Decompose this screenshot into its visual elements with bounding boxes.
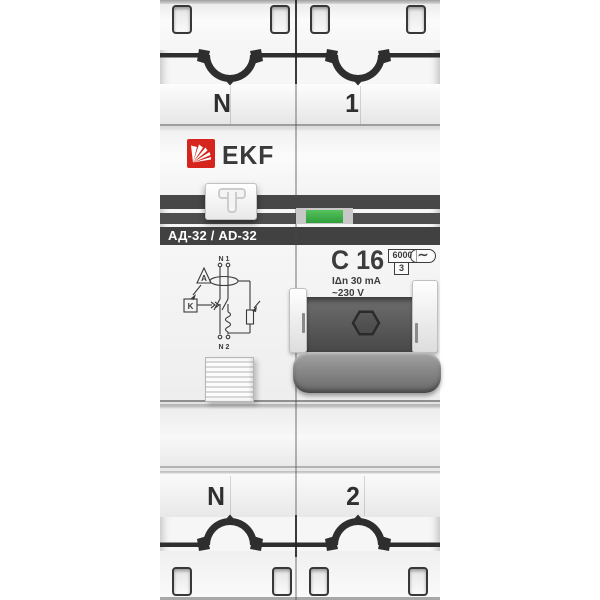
diagram-label-amp: A (201, 274, 207, 283)
rating-limiting-class: 3 (394, 262, 409, 275)
top-terminal-strip (160, 4, 440, 50)
diagram-label-n1: N 1 (219, 256, 230, 263)
terminal-label-bottom-left: N (197, 481, 235, 512)
product-photo-circuit-breaker: N 1 EKF АД-32 / AD-32 (0, 0, 600, 600)
module-divider (295, 0, 297, 84)
status-indicator-green (306, 210, 343, 223)
wiring-diagram: N 1 A K N 2 (180, 252, 265, 352)
bottom-terminal-strip (160, 551, 440, 597)
screw-slot[interactable] (172, 5, 192, 34)
top-label-band (160, 84, 440, 124)
breaker-body: N 1 EKF АД-32 / AD-32 (160, 0, 440, 600)
clip-slot (302, 313, 305, 333)
hex-hole-icon (353, 312, 379, 335)
terminal-clamp-bottom-left (160, 515, 296, 551)
body-groove (160, 400, 440, 409)
body-groove (160, 466, 440, 474)
screw-slot[interactable] (406, 5, 426, 34)
brand-text: EKF (222, 140, 274, 171)
diagram-label-relay: K (188, 302, 194, 311)
terminal-clamp-top-left (160, 49, 296, 85)
terminal-label-top-left: N (203, 88, 241, 119)
lower-face (160, 409, 440, 466)
diagram-label-n2: N 2 (219, 344, 230, 351)
screw-slot[interactable] (309, 567, 329, 596)
toggle-t-stem-icon (227, 192, 237, 213)
rating-voltage: ~230 V (332, 288, 364, 299)
ekf-logo-icon (187, 139, 215, 168)
status-indicator-window (296, 208, 353, 224)
test-button[interactable] (205, 357, 254, 402)
screw-slot[interactable] (272, 567, 292, 596)
screw-slot[interactable] (310, 5, 330, 34)
terminal-clamp-bottom-right (296, 515, 440, 551)
screw-slot[interactable] (172, 567, 192, 596)
rating-ac-type-icon: ∼ (410, 249, 436, 263)
screw-slot[interactable] (408, 567, 428, 596)
screw-slot[interactable] (270, 5, 290, 34)
mount-clip-left (289, 288, 307, 353)
toggle-handle[interactable] (205, 183, 257, 220)
module-divider (295, 515, 297, 557)
body-groove (160, 124, 440, 131)
clip-slot (415, 323, 418, 343)
decor-stripe (160, 195, 440, 209)
terminal-label-bottom-right: 2 (334, 481, 372, 512)
mount-clip-right (412, 280, 438, 353)
model-stripe: АД-32 / AD-32 (160, 227, 440, 245)
terminal-label-top-right: 1 (333, 88, 371, 119)
rating-curve-current: C 16 (331, 245, 384, 276)
rating-residual-current: IΔn 30 mA (332, 276, 381, 287)
din-rail-latch[interactable] (293, 352, 441, 393)
terminal-clamp-top-right (296, 49, 440, 85)
